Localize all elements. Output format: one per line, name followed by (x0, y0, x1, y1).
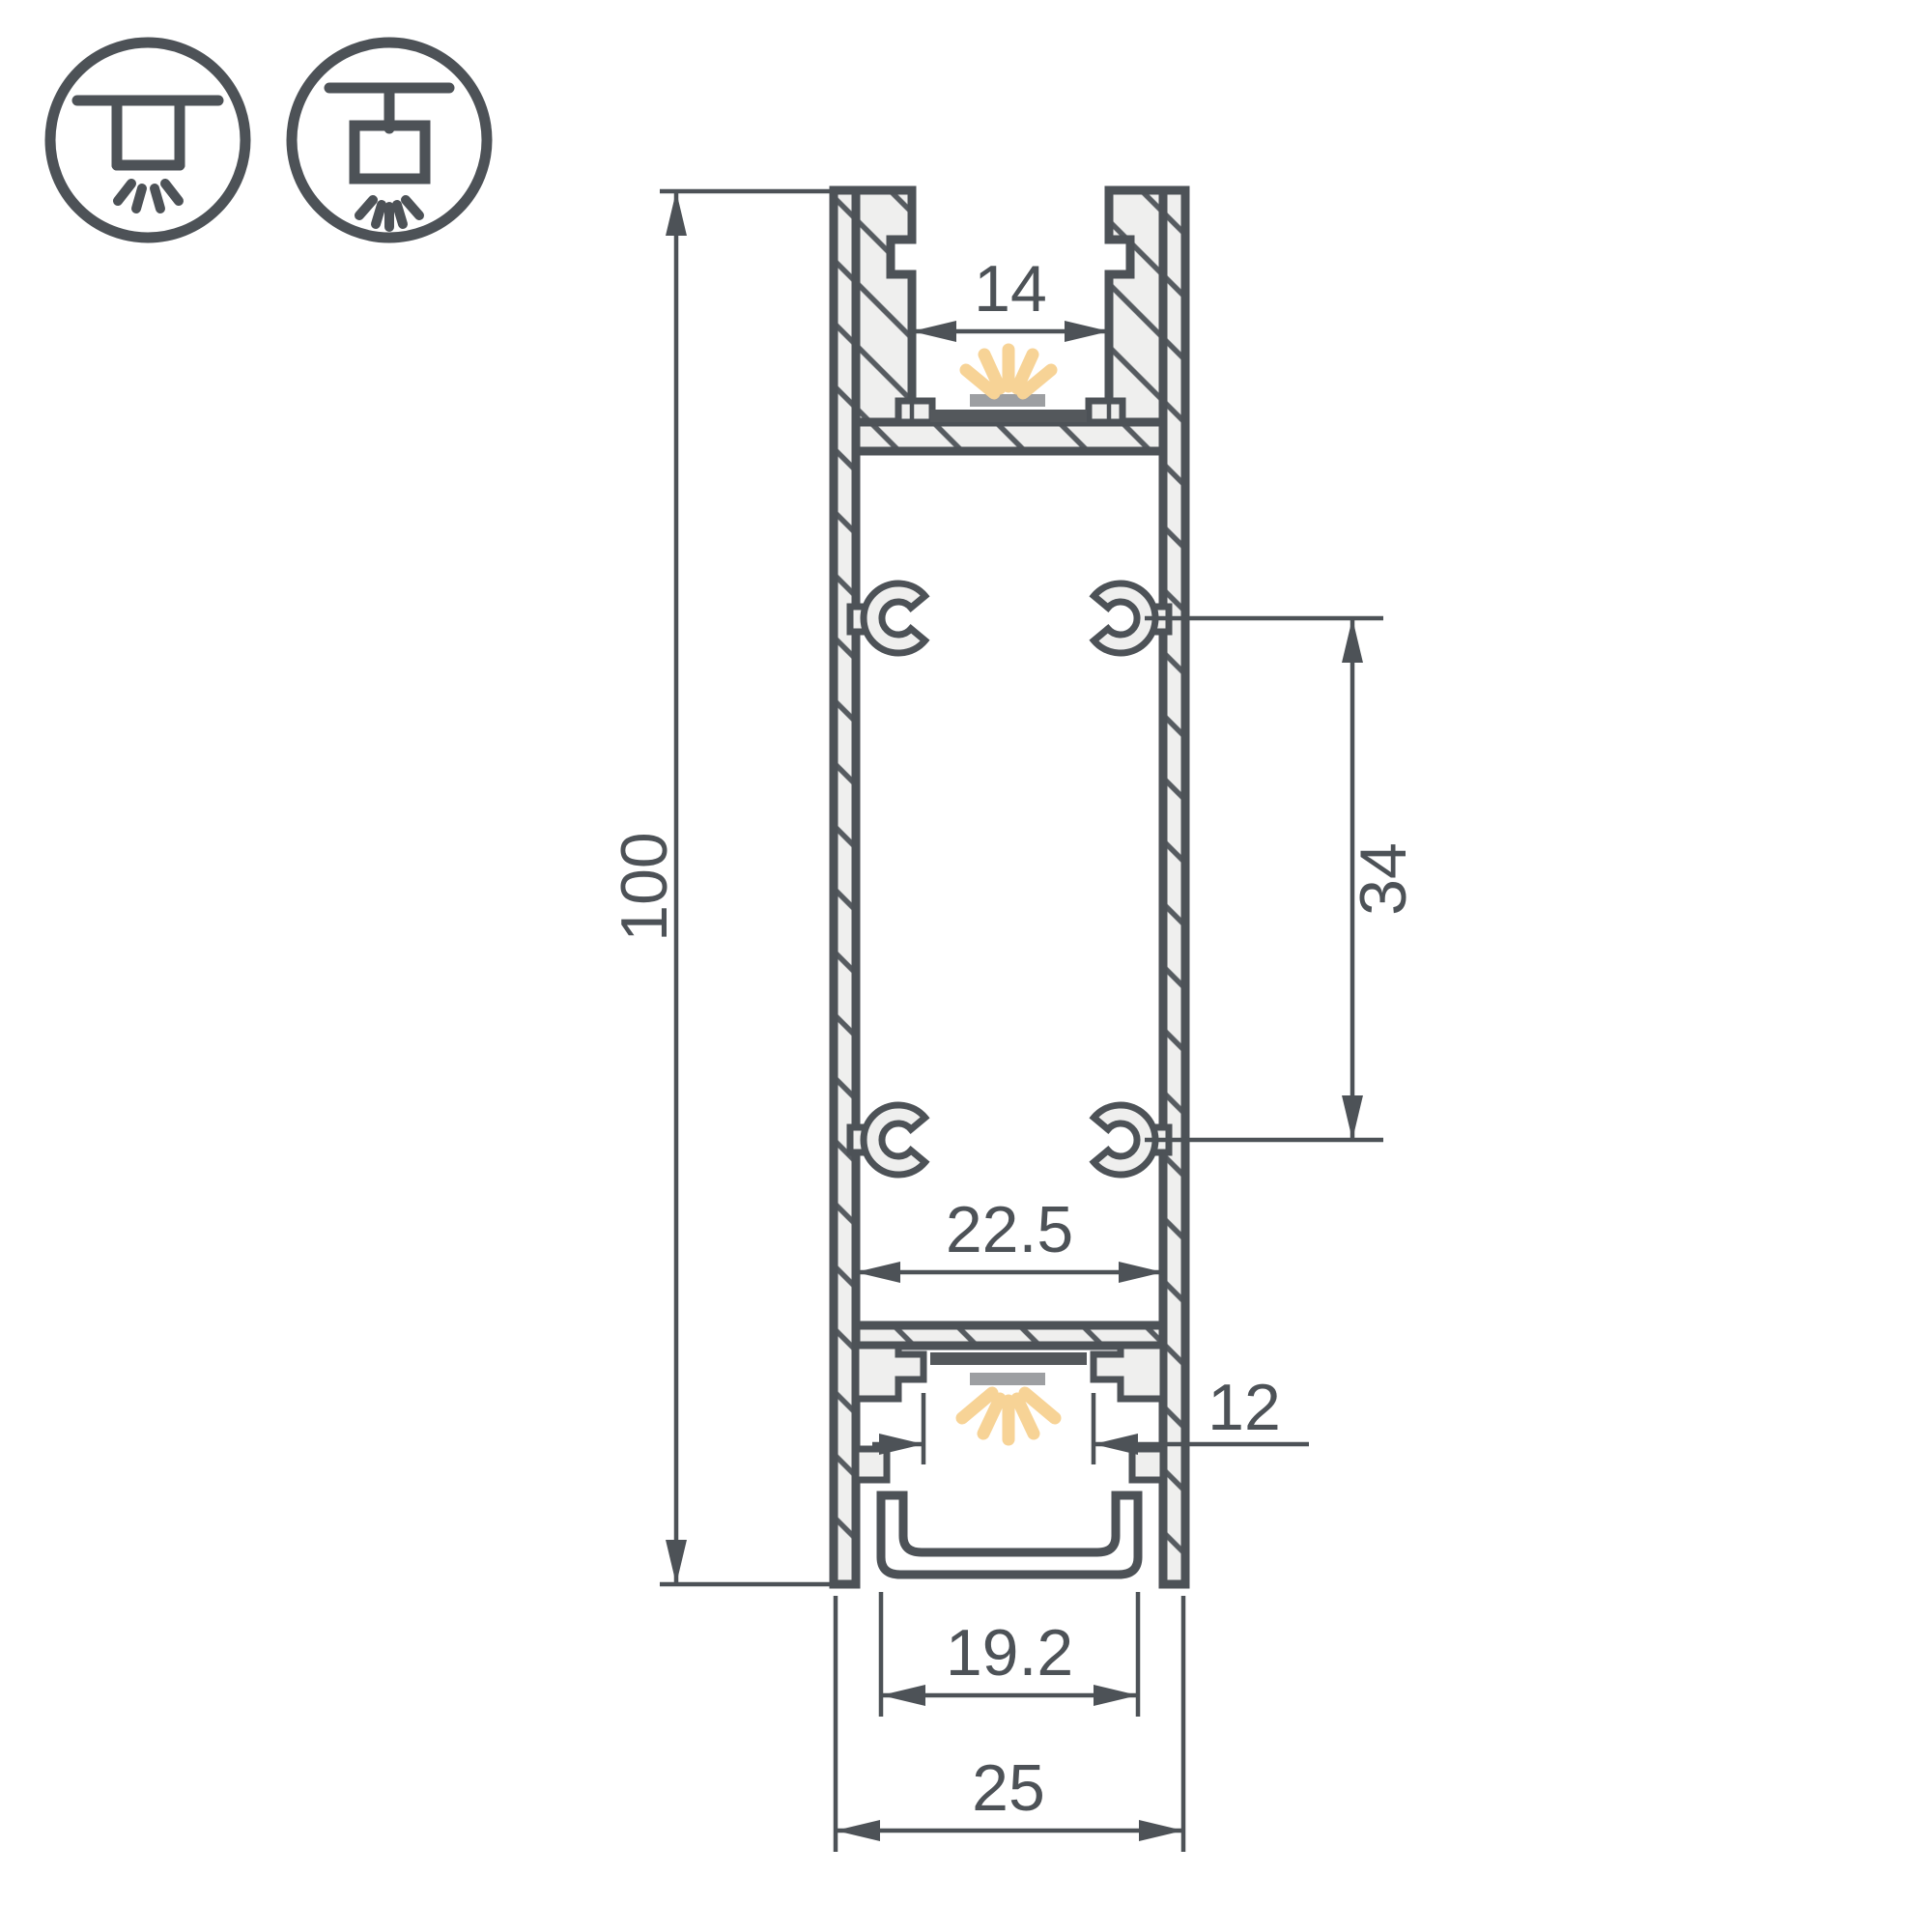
surface-mount-icon (50, 43, 245, 238)
dimension-inner-width: 22.5 (856, 1193, 1163, 1272)
top-led-body (970, 394, 1045, 407)
top-divider-plate (856, 422, 1163, 451)
bottom-led-pcb (930, 1352, 1087, 1365)
technical-drawing: 100 14 34 22.5 12 19.2 25 (0, 0, 1932, 1932)
bottom-channel-hook-right (1094, 1346, 1163, 1399)
bottom-channel-hook-left (856, 1346, 923, 1399)
screw-boss-top-left (850, 583, 925, 653)
top-channel-left-wall (856, 190, 912, 422)
dim-label-14: 14 (974, 252, 1047, 326)
diffuser-hook-right (1132, 1449, 1163, 1480)
pendant-mount-icon (292, 43, 487, 238)
dim-label-100: 100 (608, 832, 681, 941)
dim-label-34: 34 (1347, 842, 1420, 916)
dim-label-19.2: 19.2 (946, 1616, 1073, 1690)
screw-boss-bottom-left (850, 1105, 925, 1175)
top-led-lip-left (898, 401, 932, 422)
diffuser-hook-left (856, 1449, 887, 1480)
bottom-divider-plate (856, 1325, 1163, 1346)
top-channel-right-wall (1109, 190, 1163, 422)
dimension-bottom-opening: 12 (872, 1371, 1309, 1464)
dimension-diffuser-width: 19.2 (881, 1592, 1138, 1717)
light-rays-icon (118, 184, 179, 209)
dim-label-12: 12 (1207, 1371, 1281, 1444)
bottom-light-rays (962, 1393, 1055, 1439)
dim-label-22.5: 22.5 (946, 1193, 1073, 1266)
page: { "drawing": { "title": "led-profile-cro… (0, 0, 1932, 1932)
bottom-led-body (970, 1373, 1045, 1385)
dim-label-25: 25 (972, 1751, 1045, 1825)
dimension-overall-height: 100 (608, 191, 831, 1584)
top-led-pcb (930, 410, 1087, 422)
diffuser-cover (881, 1495, 1138, 1575)
light-rays-icon (359, 200, 419, 227)
top-light-rays (966, 350, 1051, 393)
top-led-lip-right (1089, 401, 1122, 422)
